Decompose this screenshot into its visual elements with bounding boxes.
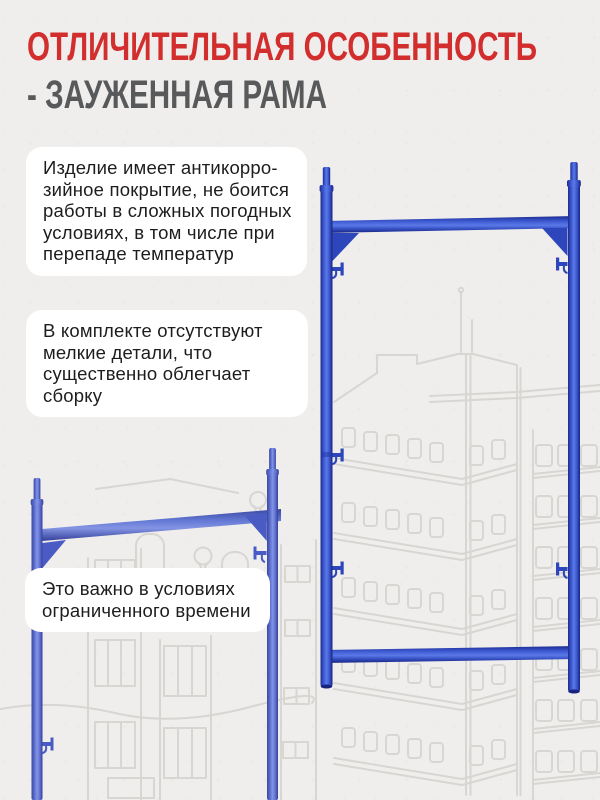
feature-line: существенно облегчает <box>43 363 293 385</box>
headline-secondary: - ЗАУЖЕННАЯ РАМА <box>27 75 327 115</box>
feature-card-anticorrosion: Изделие имеет антикорро- зийное покрытие… <box>26 147 307 276</box>
feature-line: перепаде температур <box>43 243 292 265</box>
feature-card-limited-time: Это важно в условиях ограниченного време… <box>25 568 270 632</box>
feature-line: работы в сложных погодных <box>43 200 292 222</box>
main-hook-left-mid <box>333 449 344 465</box>
feature-card-no-small-parts: В комплекте отсутствуют мелкие детали, ч… <box>26 310 308 417</box>
main-left-gusset <box>333 233 360 261</box>
main-right-tube <box>568 182 580 692</box>
main-hook-left-top <box>333 263 344 279</box>
secondary-hook-left <box>43 738 54 754</box>
main-hook-left-low <box>333 562 344 578</box>
feature-line: сборку <box>43 385 293 407</box>
feature-line: В комплекте отсутствуют <box>43 320 293 342</box>
feature-line: ограниченного времени <box>42 600 255 622</box>
secondary-crossbar <box>42 509 281 541</box>
headline-accent: ОТЛИЧИТЕЛЬНАЯ ОСОБЕННОСТЬ <box>27 27 537 67</box>
secondary-right-gusset <box>245 513 267 541</box>
feature-line: условиях, в том числе при <box>43 222 292 244</box>
feature-line: Изделие имеет антикорро- <box>43 157 292 179</box>
main-hook-right-top <box>556 258 568 274</box>
main-left-tube <box>321 187 333 687</box>
main-right-gusset <box>542 228 568 256</box>
secondary-right-tube <box>267 471 278 800</box>
secondary-left-gusset <box>43 540 67 568</box>
feature-line: зийное покрытие, не боится <box>43 179 292 201</box>
secondary-hook-right <box>254 547 267 563</box>
scaffold-frame-main <box>320 162 581 694</box>
infographic-canvas: ОТЛИЧИТЕЛЬНАЯ ОСОБЕННОСТЬ - ЗАУЖЕННАЯ РА… <box>0 0 600 800</box>
main-bottom-bar <box>323 646 577 663</box>
main-crossbar <box>323 216 577 233</box>
feature-line: мелкие детали, что <box>43 342 293 364</box>
feature-line: Это важно в условиях <box>42 578 255 600</box>
secondary-left-tube <box>32 501 43 800</box>
main-hook-right-low <box>556 563 568 579</box>
